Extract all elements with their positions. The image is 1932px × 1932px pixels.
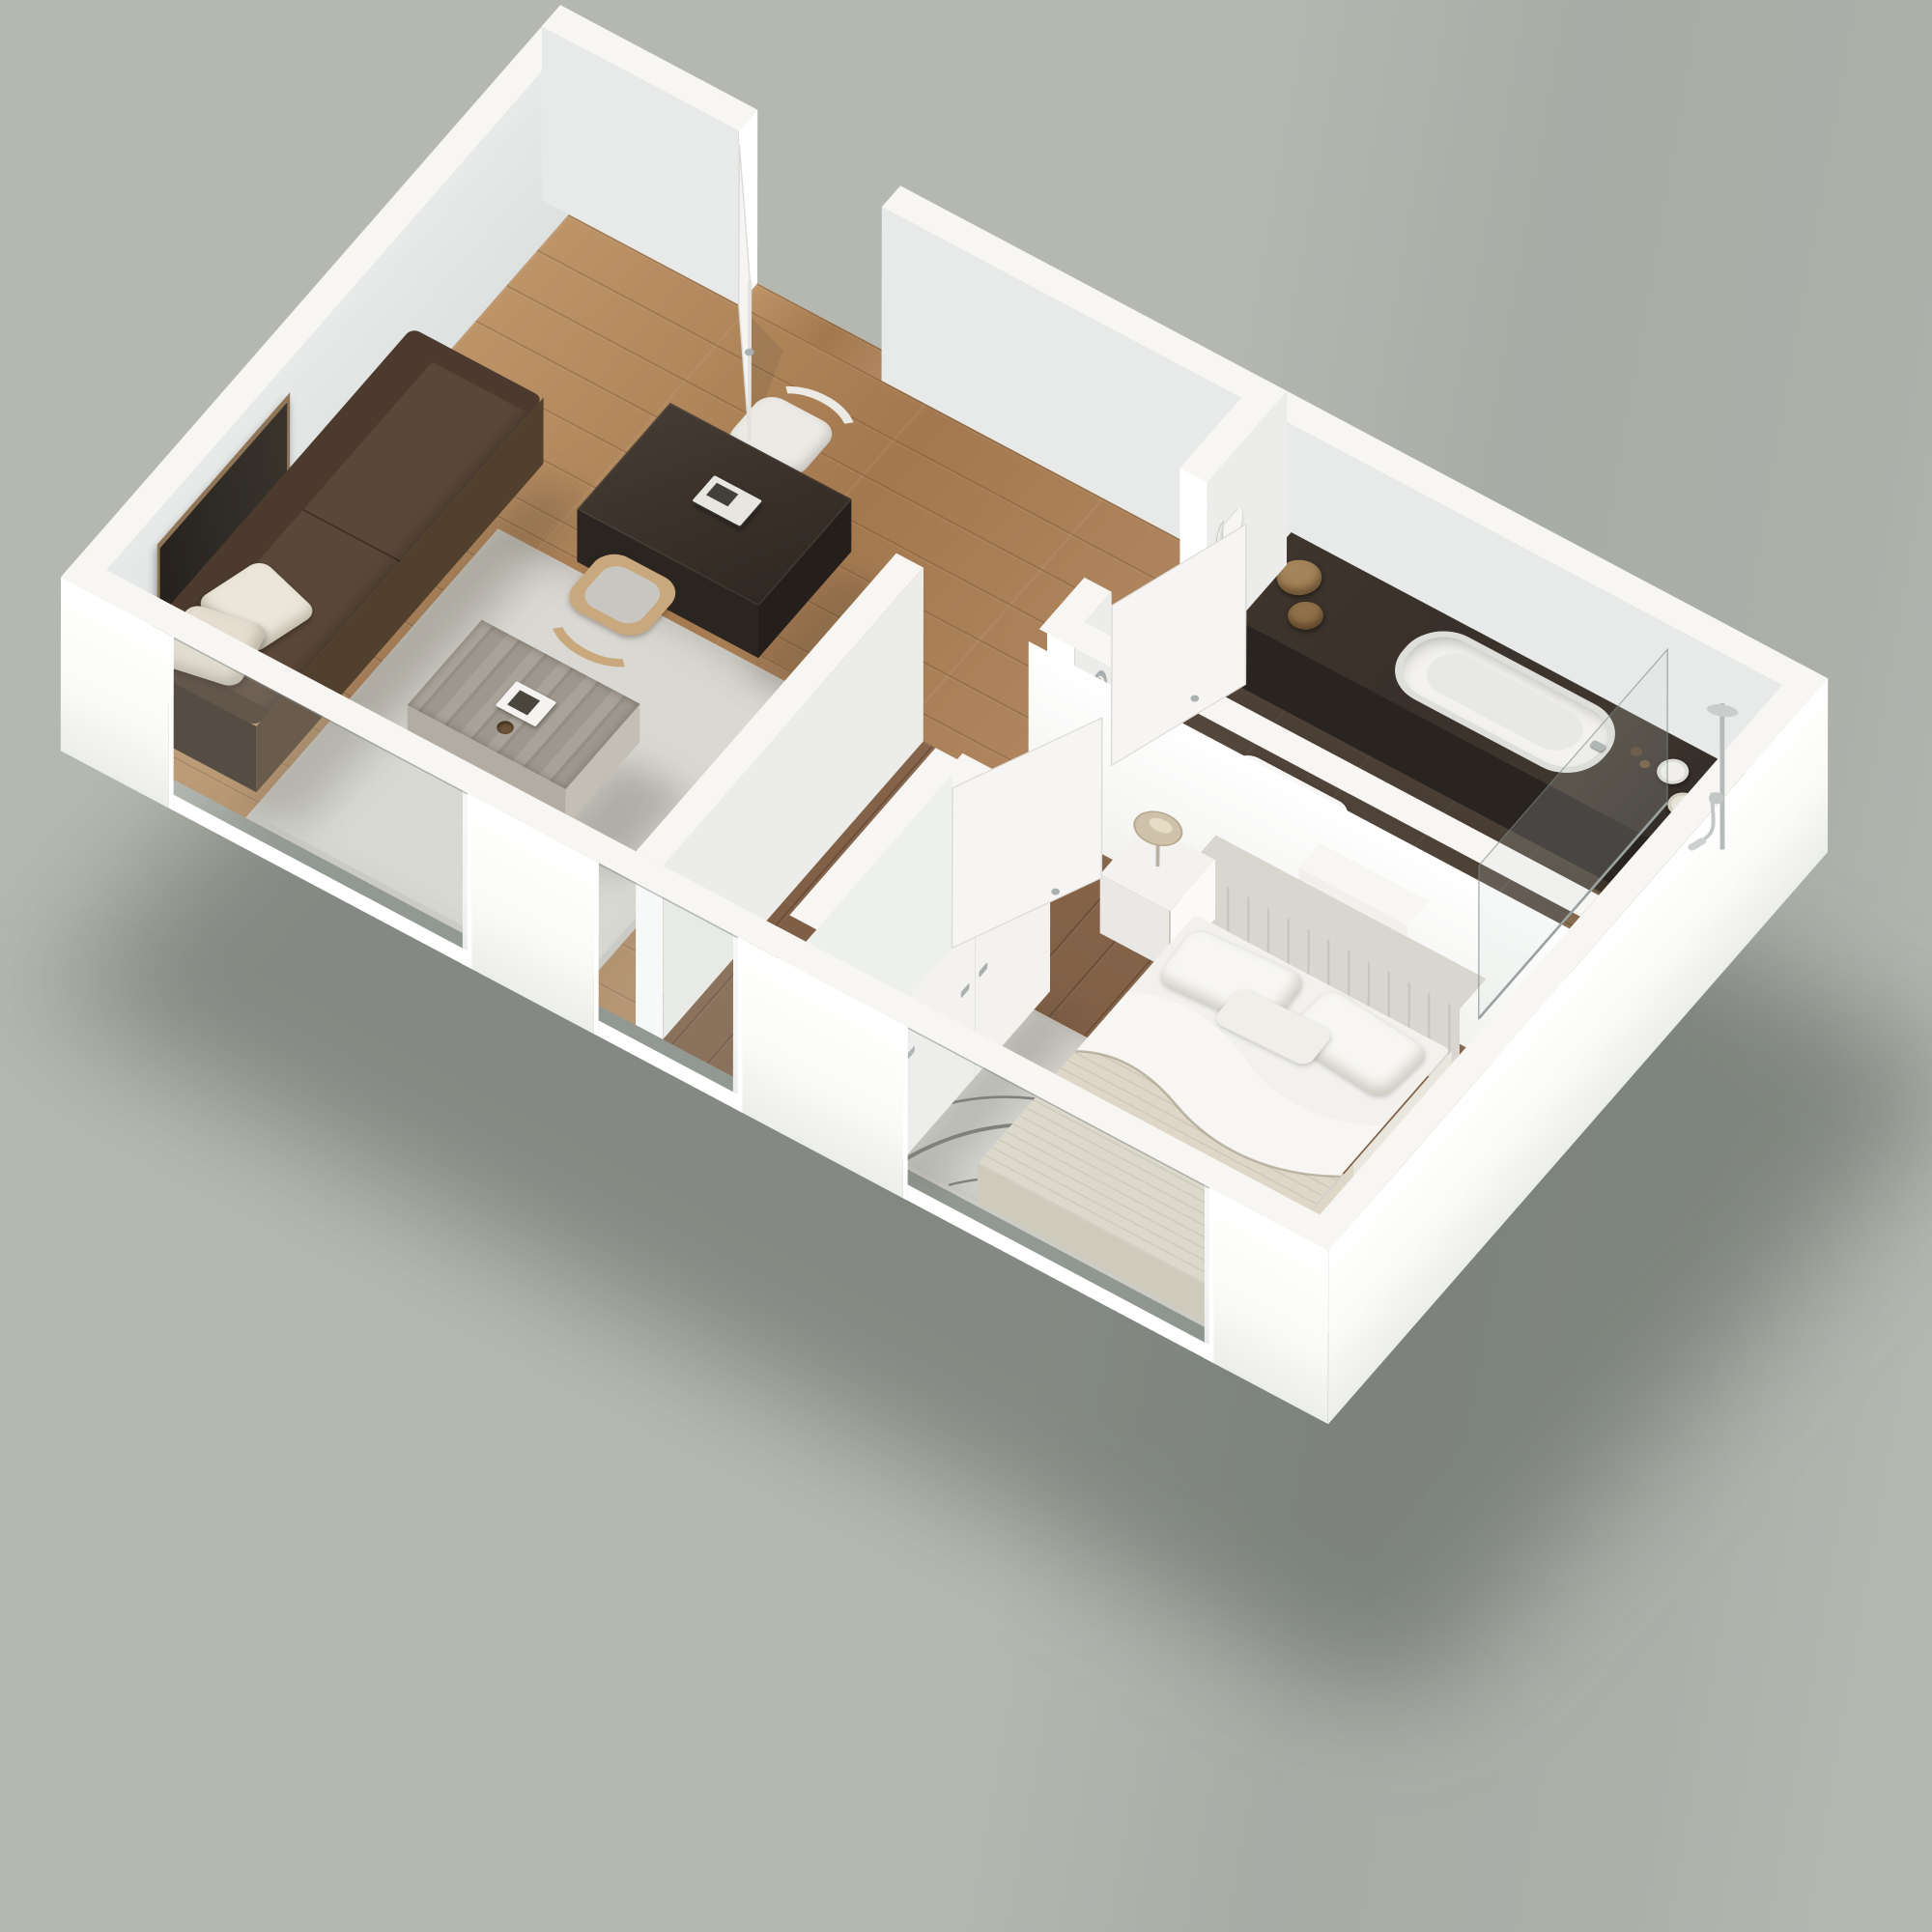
entry-door-leaf xyxy=(566,145,923,440)
floor-plan-render xyxy=(0,0,1932,1932)
shower-head xyxy=(1705,702,1740,719)
shower-handset xyxy=(1687,837,1708,852)
duvet-fold xyxy=(1066,980,1393,1198)
entry-door-edge xyxy=(654,280,844,440)
shower-hose xyxy=(1681,792,1736,841)
shower-glass xyxy=(1387,649,1758,1018)
